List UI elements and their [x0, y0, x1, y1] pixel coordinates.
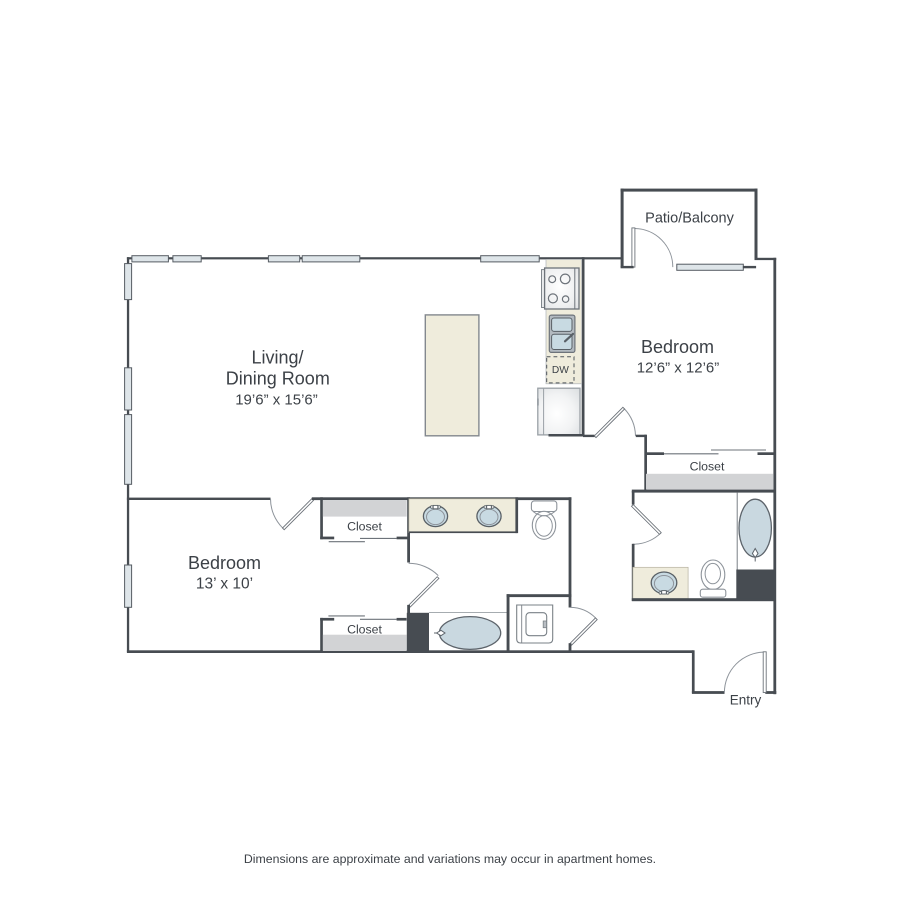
svg-text:Dining Room: Dining Room	[226, 369, 330, 389]
svg-text:Entry: Entry	[730, 693, 762, 708]
svg-text:Living/: Living/	[251, 348, 303, 368]
svg-text:Patio/Balcony: Patio/Balcony	[645, 211, 734, 227]
svg-text:Bedroom: Bedroom	[188, 553, 261, 573]
svg-text:Bedroom: Bedroom	[641, 337, 714, 357]
svg-text:19’6” x 15’6”: 19’6” x 15’6”	[235, 391, 318, 408]
svg-text:Closet: Closet	[690, 460, 725, 474]
svg-text:12’6” x 12’6”: 12’6” x 12’6”	[637, 360, 720, 377]
svg-text:13’ x 10’: 13’ x 10’	[196, 576, 253, 593]
svg-text:Closet: Closet	[347, 623, 382, 637]
svg-text:DW: DW	[552, 365, 569, 376]
svg-text:Closet: Closet	[347, 520, 382, 534]
svg-text:Dimensions are approximate and: Dimensions are approximate and variation…	[244, 852, 656, 866]
